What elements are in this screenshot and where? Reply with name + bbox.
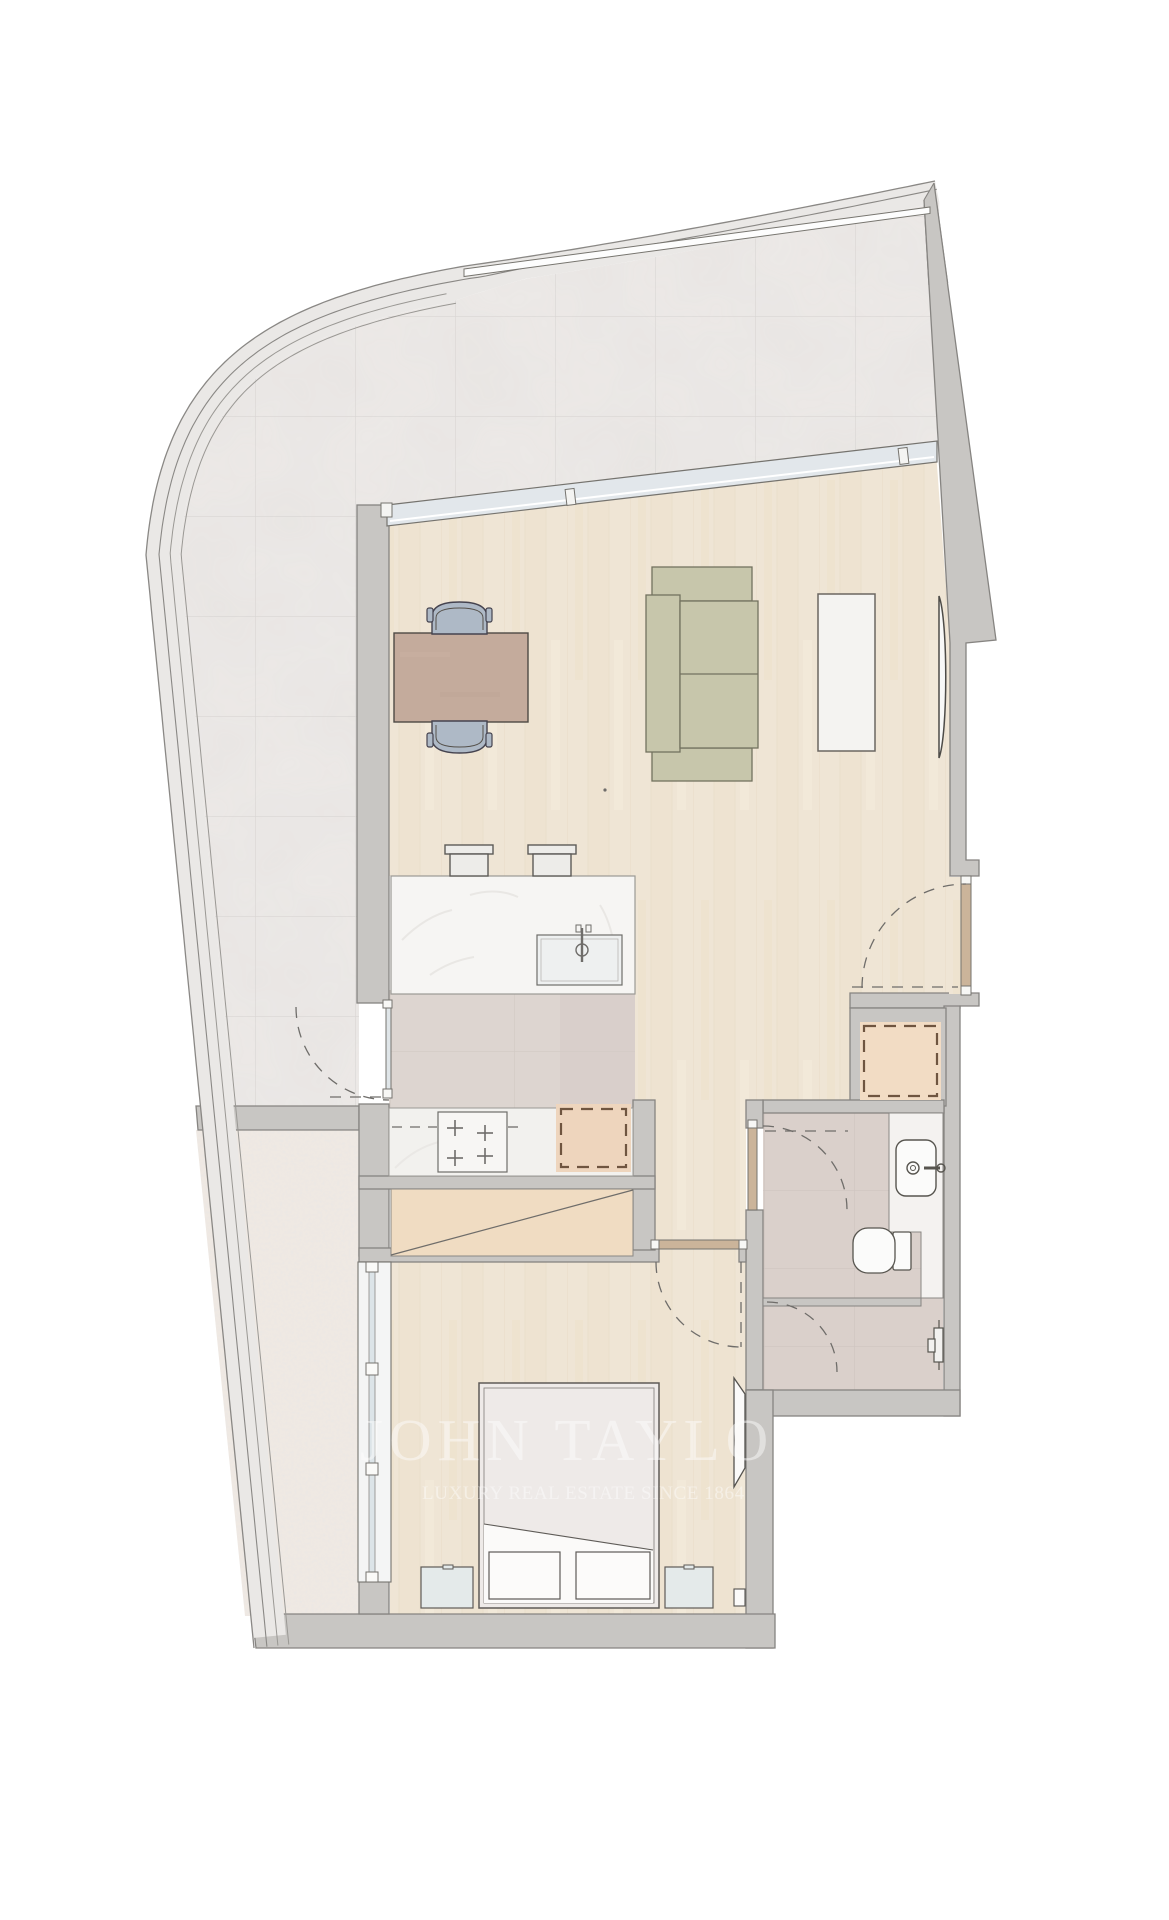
svg-text:LUXURY REAL ESTATE SINCE 1864: LUXURY REAL ESTATE SINCE 1864 bbox=[422, 1483, 745, 1504]
svg-text:JOHN TAYLOR: JOHN TAYLOR bbox=[360, 1407, 820, 1473]
